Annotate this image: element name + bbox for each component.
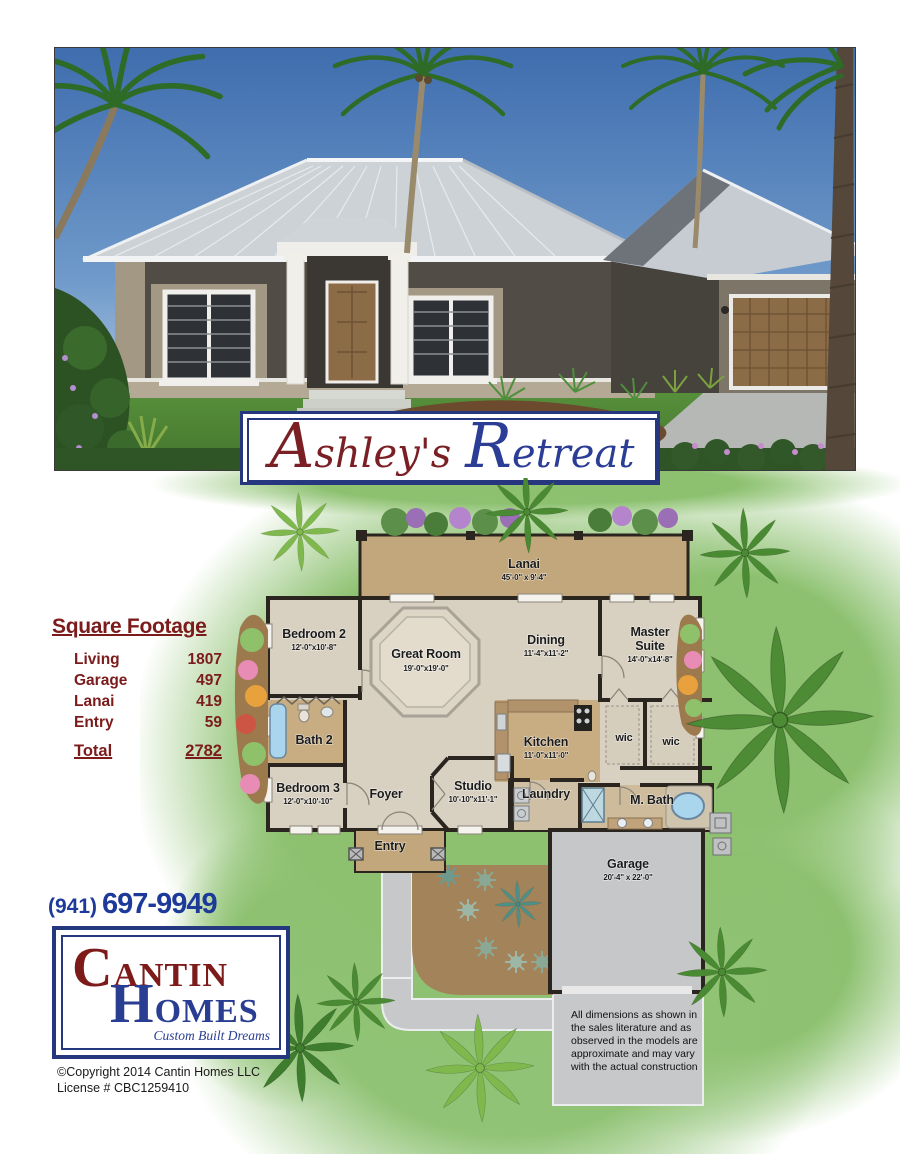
table-row: Entry59	[74, 712, 222, 733]
label-master-suite: Master	[630, 625, 669, 639]
label-studio: Studio	[454, 779, 492, 793]
house-rendering-photo	[55, 48, 855, 470]
cantin-homes-logo: CANTIN HOMES Custom Built Dreams	[52, 926, 290, 1059]
label-foyer: Foyer	[369, 787, 402, 801]
banner-title-part2: Retreat	[465, 426, 634, 474]
svg-text:14'-0"x14'-8": 14'-0"x14'-8"	[627, 655, 673, 664]
phone-number: (941) 697-9949	[48, 888, 217, 921]
svg-text:Suite: Suite	[635, 639, 665, 653]
svg-text:20'-4" x 22'-0": 20'-4" x 22'-0"	[603, 873, 653, 882]
svg-text:11'-0"x11'-0": 11'-0"x11'-0"	[524, 751, 569, 760]
table-row: Living1807	[74, 649, 222, 670]
copyright-line: ©Copyright 2014 Cantin Homes LLC	[57, 1064, 260, 1080]
plan-garage	[550, 830, 703, 994]
label-entry: Entry	[375, 839, 406, 853]
label-kitchen: Kitchen	[524, 735, 568, 749]
porch-lamp	[721, 306, 729, 314]
right-window	[405, 298, 497, 384]
table-total-row: Total2782	[74, 742, 222, 761]
logo-tagline: Custom Built Dreams	[56, 1028, 270, 1044]
table-row: Garage497	[74, 670, 222, 691]
copyright-block: ©Copyright 2014 Cantin Homes LLC License…	[57, 1064, 260, 1096]
label-lanai: Lanai	[508, 557, 540, 571]
svg-text:12'-0"x10'-8": 12'-0"x10'-8"	[291, 643, 337, 652]
plan-planting-bed	[412, 865, 553, 995]
license-line: License # CBC1259410	[57, 1080, 260, 1096]
left-flower-border	[235, 615, 268, 804]
label-mbath: M. Bath	[630, 793, 674, 807]
svg-text:10'-10"x11'-1": 10'-10"x11'-1"	[448, 795, 497, 804]
label-bedroom2: Bedroom 2	[282, 627, 346, 641]
banner-title-part1: Ashley's	[270, 426, 452, 474]
floor-plan: Lanai 45'-0" x 9'-4" Bedroom 2 12'-0"x10…	[230, 478, 900, 1165]
label-bedroom3: Bedroom 3	[276, 781, 340, 795]
flyer-page: Ashley's Retreat	[0, 0, 900, 1165]
square-footage-title: Square Footage	[52, 615, 222, 639]
square-footage-table: Square Footage Living1807 Garage497 Lana…	[52, 615, 222, 761]
porch-column	[391, 254, 408, 384]
label-dining: Dining	[527, 633, 565, 647]
left-window	[159, 292, 259, 386]
label-garage: Garage	[607, 857, 649, 871]
svg-text:45'-0" x 9'-4": 45'-0" x 9'-4"	[501, 573, 546, 582]
label-bath2: Bath 2	[295, 733, 332, 747]
label-wic2: wic	[661, 736, 679, 748]
great-room-octagon	[371, 608, 479, 716]
ac-pads	[710, 813, 731, 855]
svg-text:12'-0"x10'-10": 12'-0"x10'-10"	[283, 797, 333, 806]
svg-text:11'-4"x11'-2": 11'-4"x11'-2"	[524, 649, 569, 658]
dimensions-disclaimer: All dimensions as shown in the sales lit…	[571, 1009, 703, 1074]
label-laundry: Laundry	[522, 787, 570, 801]
porch-column	[287, 254, 304, 384]
svg-text:19'-0"x19'-0": 19'-0"x19'-0"	[403, 664, 449, 673]
label-great-room: Great Room	[391, 647, 461, 661]
house-illustration	[55, 48, 855, 470]
label-wic1: wic	[614, 732, 632, 744]
entry-steps	[309, 390, 405, 399]
title-banner: Ashley's Retreat	[240, 411, 660, 485]
logo-homes: HOMES	[110, 976, 286, 1032]
table-row: Lanai419	[74, 691, 222, 712]
